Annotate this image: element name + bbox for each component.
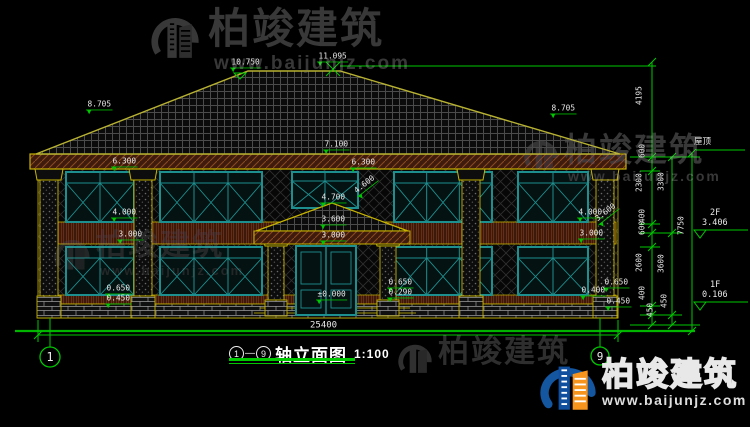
window <box>518 172 588 222</box>
brand-url-text: www.baijunjz.com <box>602 392 747 408</box>
window <box>66 172 134 222</box>
brand-name-text: 柏竣建筑 <box>602 358 747 390</box>
entry-door <box>296 246 356 315</box>
window <box>160 247 262 295</box>
window <box>292 172 358 208</box>
title-underline-thick <box>229 358 355 361</box>
title-scale: 1:100 <box>354 347 390 361</box>
brand-logo-color: 柏竣建筑 www.baijunjz.com <box>538 358 747 422</box>
title-underline-thin <box>229 363 355 364</box>
cad-elevation-canvas: 1 9 10.75011.0958.7058.7057.1006.3006.30… <box>0 0 750 427</box>
window <box>518 247 588 295</box>
axis-bubble-1-number: 1 <box>46 350 53 364</box>
window <box>160 172 262 222</box>
window <box>66 247 134 295</box>
main-roof <box>30 62 626 169</box>
brand-logo-color-icon <box>538 358 598 422</box>
